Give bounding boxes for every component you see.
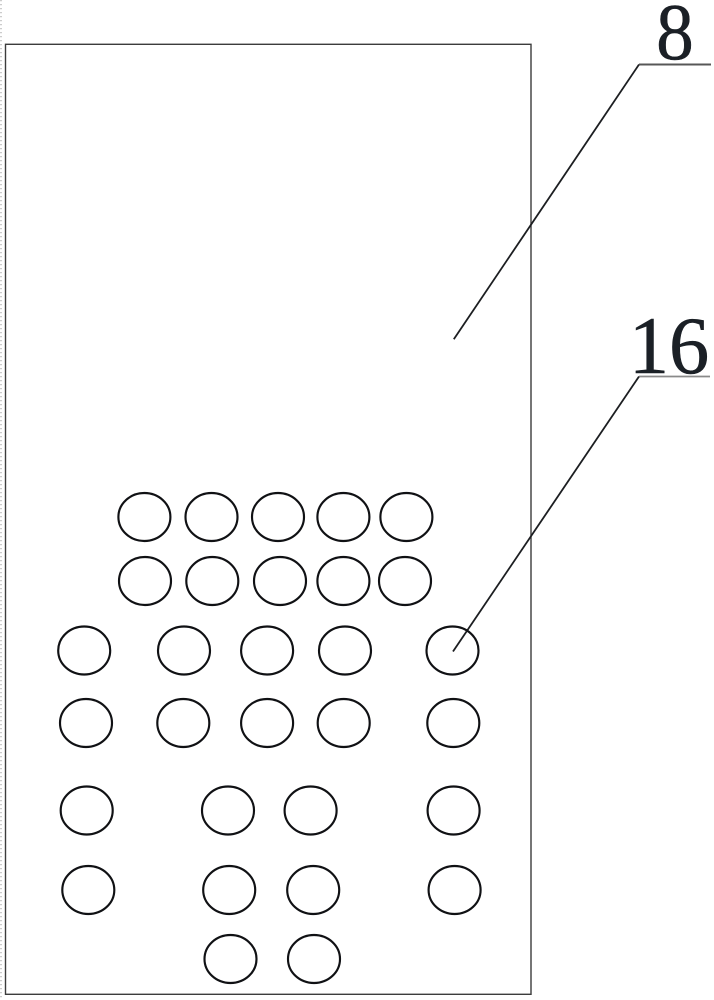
svg-text:16: 16 xyxy=(629,300,709,391)
svg-text:8: 8 xyxy=(656,0,694,77)
